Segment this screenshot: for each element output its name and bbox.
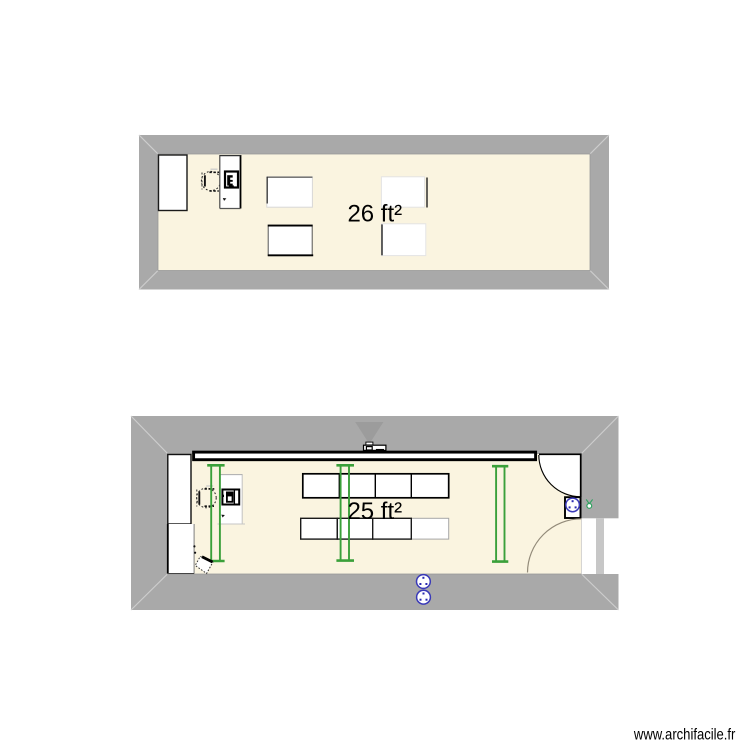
svg-text:www.archifacile.fr: www.archifacile.fr	[633, 727, 736, 744]
svg-text:26 ft²: 26 ft²	[347, 200, 402, 227]
svg-text:25 ft²: 25 ft²	[347, 498, 402, 525]
